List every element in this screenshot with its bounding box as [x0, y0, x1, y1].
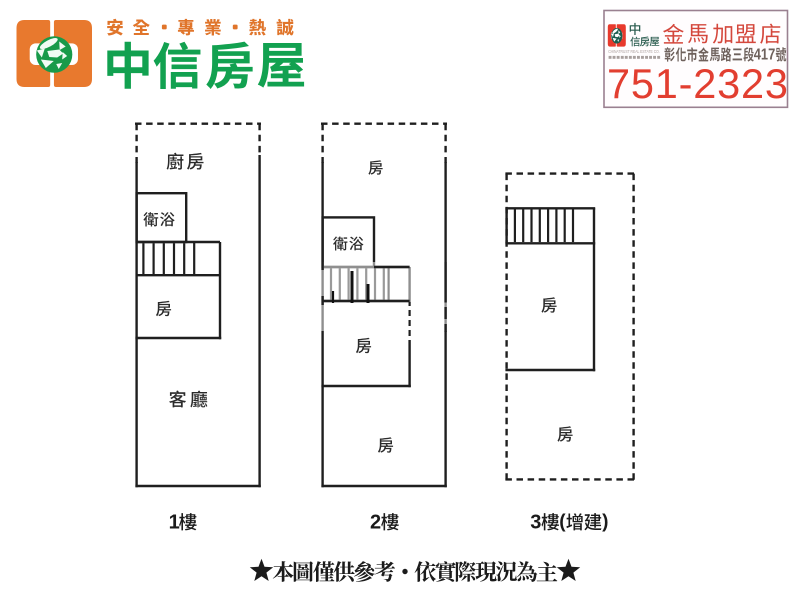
svg-text:3: 3: [530, 511, 541, 533]
svg-text:2: 2: [370, 511, 381, 533]
svg-text:(: (: [559, 512, 566, 533]
svg-text:CHINATRUST REAL ESTATE CO.: CHINATRUST REAL ESTATE CO.: [608, 49, 660, 54]
svg-text:1: 1: [169, 511, 180, 533]
svg-text:): ): [602, 512, 608, 533]
svg-text:751-2323: 751-2323: [607, 60, 789, 107]
